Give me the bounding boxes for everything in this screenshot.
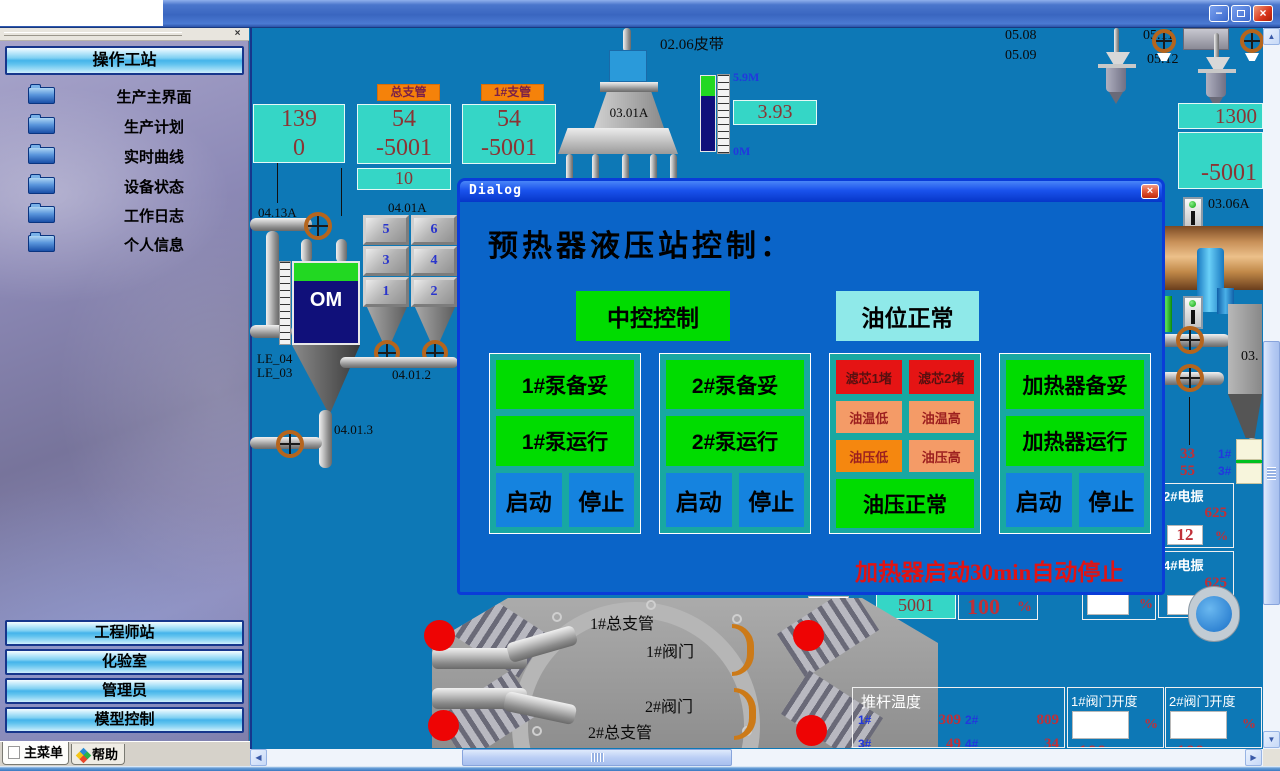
dialog-titlebar[interactable]: Dialog bbox=[460, 181, 1162, 202]
percent-sign: % bbox=[1139, 597, 1153, 613]
valve-icon[interactable] bbox=[304, 212, 332, 240]
pushrod-title: 推杆温度 bbox=[861, 691, 921, 712]
sidebar: 操作工站 生产主界面 生产计划 实时曲线 设备状态 工作日志 个人信息 工程师站… bbox=[0, 41, 249, 741]
folder-icon bbox=[28, 177, 55, 194]
gauge-max-label: 5.9M bbox=[733, 70, 759, 85]
value: 34 bbox=[1017, 736, 1059, 748]
horizontal-scrollbar-thumb[interactable] bbox=[462, 749, 732, 766]
connector-line bbox=[277, 163, 278, 203]
tag: 1# bbox=[858, 713, 871, 727]
hopper-stem bbox=[623, 28, 631, 52]
minimize-button[interactable]: − bbox=[1209, 5, 1229, 22]
tank-text: OM bbox=[294, 289, 358, 312]
tag: 3# bbox=[858, 737, 871, 748]
value: -5001 bbox=[463, 134, 555, 163]
pump1-run-lamp: 1#泵运行 bbox=[496, 416, 634, 466]
value-box-1300: 1300 bbox=[1178, 103, 1263, 129]
heater-panel: 加热器备妥 加热器运行 启动 停止 bbox=[999, 353, 1151, 534]
injector-funnel bbox=[1106, 52, 1130, 64]
heater-start-button[interactable]: 启动 bbox=[1006, 473, 1072, 527]
valve1-open-input[interactable] bbox=[1072, 711, 1129, 739]
valve-handle[interactable] bbox=[732, 624, 754, 676]
station-admin-button[interactable]: 管理员 bbox=[5, 678, 244, 704]
main-header-label: 总支管 bbox=[377, 84, 440, 101]
heater-run-lamp: 加热器运行 bbox=[1006, 416, 1144, 466]
hopper-band bbox=[600, 82, 658, 92]
folder-icon bbox=[28, 235, 55, 252]
value: 54 bbox=[358, 105, 450, 134]
oil-tank: OM bbox=[292, 261, 360, 345]
filter-cell: 6 bbox=[411, 215, 457, 245]
value: 139 bbox=[254, 105, 344, 134]
scroll-left-button[interactable]: ◀ bbox=[250, 749, 267, 766]
help-icon bbox=[76, 748, 92, 764]
handwheel-valve-icon[interactable] bbox=[1240, 29, 1264, 53]
restore-button[interactable] bbox=[1231, 5, 1251, 22]
sidebar-item-realtime-curve[interactable]: 实时曲线 bbox=[10, 144, 240, 168]
percent-sign: % bbox=[1242, 717, 1256, 733]
percent-sign: % bbox=[1215, 528, 1228, 544]
vibrator2-title: 2#电振 bbox=[1163, 486, 1203, 505]
close-icon: × bbox=[1259, 6, 1266, 20]
filter2-clog-lamp: 滤芯2堵 bbox=[909, 360, 975, 394]
connector-line bbox=[1189, 397, 1190, 445]
filter-cell: 4 bbox=[411, 246, 457, 276]
vibrator4-title: 4#电振 bbox=[1163, 555, 1203, 574]
scroll-up-button[interactable]: ▲ bbox=[1263, 28, 1280, 45]
sidebar-grip[interactable] bbox=[4, 32, 182, 36]
oil-level-lamp: 油位正常 bbox=[836, 291, 979, 341]
close-button[interactable]: × bbox=[1253, 5, 1273, 22]
value-box-neg5001: -5001 bbox=[1178, 132, 1263, 189]
tank-cone bbox=[292, 345, 360, 415]
pump2-ready-lamp: 2#泵备妥 bbox=[666, 360, 804, 409]
filter-hopper-cone bbox=[415, 307, 455, 343]
pump2-stop-button[interactable]: 停止 bbox=[739, 473, 805, 527]
viewport-border bbox=[250, 28, 252, 766]
bolt bbox=[732, 614, 742, 624]
handwheel-valve-icon[interactable] bbox=[1152, 29, 1176, 53]
switch-icon[interactable] bbox=[1183, 296, 1203, 329]
percent-sign: % bbox=[1130, 744, 1143, 748]
cream-box bbox=[1236, 463, 1262, 484]
sidebar-item-production-plan[interactable]: 生产计划 bbox=[10, 114, 240, 138]
valve2-open-sp: 100 bbox=[1176, 742, 1205, 748]
filter-cell: 3 bbox=[363, 246, 409, 276]
tag: 4# bbox=[965, 737, 978, 748]
injector-funnel bbox=[1206, 57, 1230, 69]
vibrator2-panel: 2#电振 625 12 % bbox=[1158, 483, 1234, 548]
motor-box bbox=[1183, 28, 1229, 50]
value: 809 bbox=[1017, 712, 1059, 729]
folder-icon bbox=[28, 206, 55, 223]
heater-auto-stop-note: 加热器启动30min自动停止 bbox=[855, 553, 1155, 587]
value-box-main-pipe: 54 -5001 bbox=[357, 104, 451, 164]
tab-label: 主菜单 bbox=[24, 745, 63, 760]
kiln-valve2-label: 2#阀门 bbox=[645, 693, 693, 717]
titlebar-blank-area bbox=[0, 0, 163, 26]
pipe bbox=[336, 239, 347, 263]
status-lamp-red bbox=[428, 710, 459, 741]
dialog-close-button[interactable]: × bbox=[1141, 184, 1159, 199]
valve1-open-title: 1#阀门开度 bbox=[1071, 691, 1137, 710]
pipe bbox=[250, 218, 312, 231]
belt-label: 02.06皮带 bbox=[660, 33, 724, 54]
tab-help[interactable]: 帮助 bbox=[71, 744, 125, 765]
tank-gas-layer bbox=[294, 263, 358, 281]
branch-header-label: 1#支管 bbox=[481, 84, 544, 101]
sidebar-item-label: 生产计划 bbox=[68, 116, 240, 137]
blower-housing bbox=[1188, 586, 1240, 642]
input-box[interactable] bbox=[1087, 594, 1129, 615]
sidebar-item-main-screen[interactable]: 生产主界面 bbox=[10, 84, 240, 108]
heater-stop-button[interactable]: 停止 bbox=[1079, 473, 1145, 527]
percent-sign: % bbox=[1228, 744, 1241, 748]
folder-icon bbox=[28, 117, 55, 134]
valve-icon[interactable] bbox=[1176, 364, 1204, 392]
percent-sign: % bbox=[1144, 717, 1158, 733]
station-model-control-button[interactable]: 模型控制 bbox=[5, 707, 244, 733]
pump1-panel: 1#泵备妥 1#泵运行 启动 停止 bbox=[489, 353, 641, 534]
value-100: 100 bbox=[967, 594, 1000, 620]
main-menu-icon bbox=[8, 746, 20, 759]
pump1-stop-button[interactable]: 停止 bbox=[569, 473, 635, 527]
oil-press-ok-lamp: 油压正常 bbox=[836, 479, 974, 528]
valve-icon[interactable] bbox=[276, 430, 304, 458]
valve1-open-sp: 100 bbox=[1078, 742, 1107, 748]
oil-temp-high-lamp: 油温高 bbox=[909, 401, 975, 433]
level-value-55: 55 bbox=[1180, 463, 1195, 480]
vibrator2-input[interactable]: 12 bbox=[1167, 525, 1203, 545]
gauge-min-label: 0M bbox=[733, 144, 750, 159]
valve-funnel bbox=[1245, 53, 1259, 61]
vertical-scrollbar-thumb[interactable] bbox=[1263, 341, 1280, 605]
mode-button[interactable]: 中控控制 bbox=[576, 291, 730, 341]
equip-label-0306: 03.06A bbox=[1208, 197, 1250, 213]
filters-label: 04.01A bbox=[388, 200, 427, 216]
level-tag-3: 3# bbox=[1218, 464, 1231, 478]
sidebar-item-work-log[interactable]: 工作日志 bbox=[10, 203, 240, 227]
pump2-run-lamp: 2#泵运行 bbox=[666, 416, 804, 466]
sidebar-item-label: 个人信息 bbox=[68, 234, 240, 255]
kiln-valve1-label: 1#阀门 bbox=[646, 638, 694, 662]
hopper-label: 03.01A bbox=[595, 105, 663, 121]
pump1-ready-lamp: 1#泵备妥 bbox=[496, 360, 634, 409]
station-engineer-button[interactable]: 工程师站 bbox=[5, 620, 244, 646]
percent-sign: % bbox=[1017, 599, 1032, 616]
heater-ready-lamp: 加热器备妥 bbox=[1006, 360, 1144, 409]
status-lamp-red bbox=[796, 715, 827, 746]
pump2-start-button[interactable]: 启动 bbox=[666, 473, 732, 527]
bolt bbox=[552, 612, 562, 622]
dialog-heading: 预热器液压站控制： bbox=[488, 221, 794, 265]
pump1-start-button[interactable]: 启动 bbox=[496, 473, 562, 527]
station-lab-button[interactable]: 化验室 bbox=[5, 649, 244, 675]
right-hopper-cone bbox=[1228, 394, 1262, 438]
connector-line bbox=[341, 168, 342, 216]
hopper-roof bbox=[558, 128, 678, 154]
thumb-grip bbox=[1267, 467, 1276, 480]
sidebar-close-icon[interactable]: × bbox=[231, 28, 244, 40]
hopper-top bbox=[609, 50, 647, 82]
oil-press-low-lamp: 油压低 bbox=[836, 440, 902, 472]
value-box-branch-pipe: 54 -5001 bbox=[462, 104, 556, 164]
kiln-pipe2-label: 2#总支管 bbox=[588, 719, 652, 743]
value: -5001 bbox=[358, 134, 450, 163]
cream-box bbox=[1236, 439, 1262, 460]
tab-main-menu[interactable]: 主菜单 bbox=[2, 742, 69, 765]
valve-icon[interactable] bbox=[1176, 326, 1204, 354]
sidebar-tabrow: 主菜单 帮助 bbox=[0, 741, 250, 766]
equip-label-0508: 05.08 bbox=[1005, 28, 1037, 44]
tank-ruler bbox=[279, 261, 291, 345]
restore-icon bbox=[1237, 10, 1245, 17]
equip-label-03: 03. bbox=[1241, 349, 1259, 365]
injector-body bbox=[1106, 68, 1126, 92]
window-titlebar: − × bbox=[0, 0, 1280, 28]
pump2-panel: 2#泵备妥 2#泵运行 启动 停止 bbox=[659, 353, 811, 534]
value: 49 bbox=[919, 736, 961, 748]
filter1-clog-lamp: 滤芯1堵 bbox=[836, 360, 902, 394]
level-gauge-top bbox=[701, 76, 715, 96]
scrollbar-corner bbox=[1263, 749, 1280, 766]
value: 54 bbox=[463, 105, 555, 134]
injector-stem bbox=[1114, 28, 1119, 54]
alarm-panel: 滤芯1堵 滤芯2堵 油温低 油温高 油压低 油压高 油压正常 bbox=[829, 353, 981, 534]
level-value-33: 33 bbox=[1180, 446, 1195, 463]
pipe bbox=[301, 239, 312, 263]
pipe bbox=[266, 231, 279, 331]
valve2-open-panel: 2#阀门开度 % 100 % bbox=[1165, 687, 1262, 748]
oil-press-high-lamp: 油压高 bbox=[909, 440, 975, 472]
kiln-pipe1-label: 1#总支管 bbox=[590, 610, 654, 634]
close-icon: × bbox=[1147, 185, 1153, 197]
value-box-139: 139 0 bbox=[253, 104, 345, 163]
vibrator2-setpoint: 625 bbox=[1205, 505, 1228, 522]
valve2-open-title: 2#阀门开度 bbox=[1169, 691, 1235, 710]
window-bottom-edge bbox=[0, 766, 1280, 771]
blower-port bbox=[1196, 596, 1232, 632]
scroll-down-button[interactable]: ▼ bbox=[1263, 731, 1280, 748]
level-gauge-bar bbox=[700, 75, 716, 152]
value-box-10: 10 bbox=[357, 168, 451, 190]
status-lamp-red bbox=[424, 620, 455, 651]
tab-label: 帮助 bbox=[92, 747, 118, 762]
filter-cell: 1 bbox=[363, 277, 409, 307]
minimize-icon: − bbox=[1215, 6, 1222, 20]
value: 309 bbox=[919, 712, 961, 729]
preheater-dialog: Dialog × 预热器液压站控制： 中控控制 油位正常 1#泵备妥 1#泵运行… bbox=[457, 178, 1165, 595]
vibrator2-pv: 12 bbox=[1177, 525, 1194, 544]
sidebar-header: 操作工站 bbox=[5, 46, 244, 75]
sidebar-item-label: 实时曲线 bbox=[68, 146, 240, 167]
pipe3-label: 04.01.3 bbox=[334, 422, 373, 438]
valve1-open-panel: 1#阀门开度 % 100 % bbox=[1067, 687, 1164, 748]
filter-cell: 5 bbox=[363, 215, 409, 245]
valve2-open-input[interactable] bbox=[1170, 711, 1227, 739]
value: 0 bbox=[254, 134, 344, 163]
sidebar-item-label: 工作日志 bbox=[68, 205, 240, 226]
sidebar-item-label: 设备状态 bbox=[68, 176, 240, 197]
filter-cell: 2 bbox=[411, 277, 457, 307]
filter-hopper-cone bbox=[367, 307, 407, 343]
folder-icon bbox=[28, 87, 55, 104]
injector-body bbox=[1206, 73, 1226, 97]
thumb-grip bbox=[591, 753, 604, 762]
folder-icon bbox=[28, 147, 55, 164]
pipe2-label: 04.01.2 bbox=[392, 367, 431, 383]
oil-temp-low-lamp: 油温低 bbox=[836, 401, 902, 433]
bolt bbox=[646, 600, 656, 610]
scroll-right-button[interactable]: ▶ bbox=[1245, 749, 1262, 766]
tag: 2# bbox=[965, 713, 978, 727]
status-lamp-red bbox=[793, 620, 824, 651]
gauge-value-box: 3.93 bbox=[733, 100, 817, 125]
sidebar-item-device-status[interactable]: 设备状态 bbox=[10, 174, 240, 198]
injector-stem bbox=[1214, 33, 1219, 59]
sidebar-item-label: 生产主界面 bbox=[68, 86, 240, 107]
horizontal-scrollbar-track bbox=[250, 749, 1263, 766]
pushrod-temp-panel: 推杆温度 1# 309 2# 809 3# 49 4# 34 bbox=[852, 687, 1065, 748]
sidebar-item-personal-info[interactable]: 个人信息 bbox=[10, 232, 240, 256]
level-tag-1: 1# bbox=[1218, 447, 1231, 461]
injector-cone bbox=[1109, 92, 1123, 104]
equip-label-0509: 05.09 bbox=[1005, 48, 1037, 64]
bolt bbox=[532, 726, 542, 736]
level-gauge-ruler bbox=[717, 74, 730, 154]
le03-label: LE_03 bbox=[257, 365, 292, 381]
screen: − × × 操作工站 生产主界面 生产计划 实时曲线 设备状态 工作日志 个人信… bbox=[0, 0, 1280, 771]
